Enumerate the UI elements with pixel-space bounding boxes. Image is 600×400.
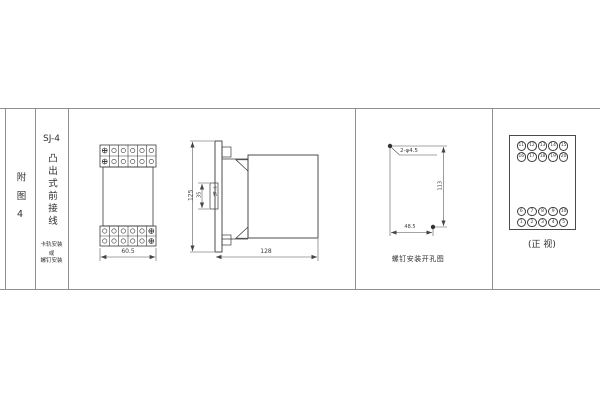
terminal-number: 20 bbox=[559, 152, 569, 162]
terminal-number: 18 bbox=[538, 152, 548, 162]
terminal-number: 9 bbox=[548, 207, 558, 217]
terminal-view-caption: (正 视) bbox=[506, 241, 578, 251]
bottom-clip bbox=[236, 227, 248, 238]
terminal-number: 14 bbox=[548, 141, 558, 151]
front-view-drawing bbox=[100, 145, 156, 261]
terminal-number: 10 bbox=[559, 207, 569, 217]
bottom-tab bbox=[222, 235, 231, 245]
terminal-number: 11 bbox=[517, 141, 527, 151]
terminal-group-bottom: 6 7 8 9 10 1 2 3 4 5 bbox=[517, 207, 569, 229]
terminal-number: 2 bbox=[527, 218, 537, 228]
terminal-row: 1 2 3 4 5 bbox=[517, 218, 569, 228]
terminal-number: 19 bbox=[548, 152, 558, 162]
terminal-layout-box: 11 12 13 14 15 16 17 18 19 20 6 7 8 9 10 bbox=[509, 135, 576, 230]
terminal-number: 5 bbox=[559, 218, 569, 228]
terminal-number: 15 bbox=[559, 141, 569, 151]
holes-label-text: 2-φ4.5 bbox=[400, 148, 418, 154]
terminal-row: 16 17 18 19 20 bbox=[517, 152, 569, 162]
front-width-dim-text: 60.5 bbox=[103, 249, 153, 256]
terminal-group-top: 11 12 13 14 15 16 17 18 19 20 bbox=[517, 141, 569, 163]
relay-body-front bbox=[103, 167, 153, 226]
drill-height-dim-text: 113 bbox=[438, 173, 444, 197]
terminal-row: 11 12 13 14 15 bbox=[517, 141, 569, 151]
mounting-hole-bottom bbox=[431, 225, 435, 229]
din-rail-label: 卡轨 bbox=[212, 186, 217, 197]
terminal-number: 6 bbox=[517, 207, 527, 217]
drill-view-caption: 螺钉安装开孔图 bbox=[376, 256, 460, 264]
top-clip bbox=[236, 160, 248, 171]
terminal-number: 12 bbox=[527, 141, 537, 151]
terminal-row: 6 7 8 9 10 bbox=[517, 207, 569, 217]
relay-body-side bbox=[248, 155, 318, 238]
terminal-number: 1 bbox=[517, 218, 527, 228]
side-view-drawing bbox=[190, 141, 318, 261]
terminal-number: 13 bbox=[538, 141, 548, 151]
top-tab bbox=[222, 147, 231, 157]
manual-page: 附图4 SJ-4 凸出式前接线 卡轨安装 或 螺钉安装 bbox=[0, 0, 600, 400]
rail-height-dim-text: 35 bbox=[197, 185, 203, 205]
side-height-dim-text: 125 bbox=[189, 181, 196, 209]
drill-width-dim-text: 48.5 bbox=[394, 225, 426, 231]
terminal-number: 4 bbox=[548, 218, 558, 228]
terminal-number: 16 bbox=[517, 152, 527, 162]
side-depth-dim-text: 128 bbox=[241, 249, 291, 256]
terminal-number: 8 bbox=[538, 207, 548, 217]
terminal-number: 7 bbox=[527, 207, 537, 217]
terminal-number: 3 bbox=[538, 218, 548, 228]
terminal-number: 17 bbox=[527, 152, 537, 162]
